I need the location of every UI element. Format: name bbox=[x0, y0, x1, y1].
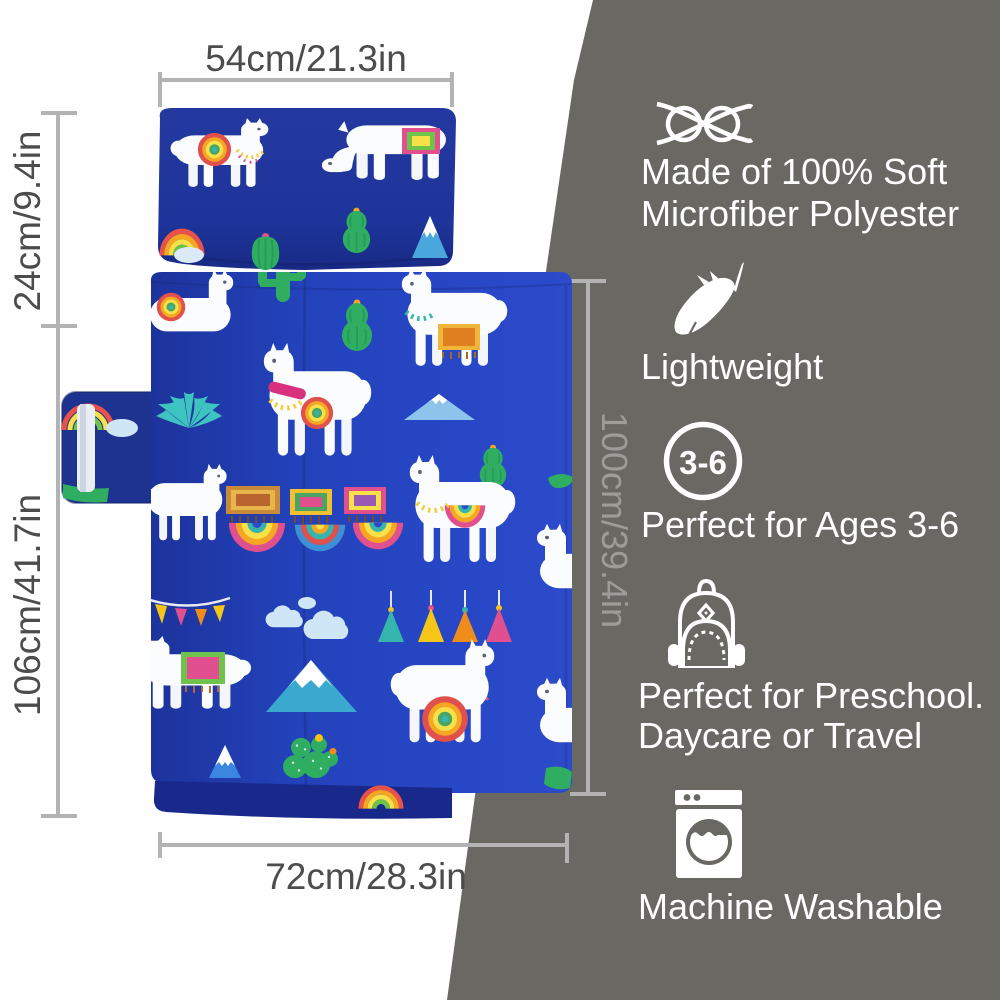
svg-text:Microfiber Polyester: Microfiber Polyester bbox=[641, 193, 959, 234]
svg-text:Made of 100% Soft: Made of 100% Soft bbox=[641, 151, 947, 192]
svg-text:3-6: 3-6 bbox=[679, 444, 727, 481]
svg-text:54cm/21.3in: 54cm/21.3in bbox=[205, 38, 407, 79]
svg-text:24cm/9.4in: 24cm/9.4in bbox=[7, 131, 48, 312]
svg-text:Perfect for Preschool.: Perfect for Preschool. bbox=[638, 675, 984, 716]
svg-text:Lightweight: Lightweight bbox=[641, 346, 823, 387]
svg-text:106cm/41.7in: 106cm/41.7in bbox=[7, 494, 48, 716]
svg-text:72cm/28.3in: 72cm/28.3in bbox=[265, 856, 467, 897]
svg-text:Daycare or Travel: Daycare or Travel bbox=[638, 715, 922, 756]
svg-text:100cm/39.4in: 100cm/39.4in bbox=[594, 412, 635, 628]
svg-text:Machine Washable: Machine Washable bbox=[638, 886, 943, 927]
svg-text:Perfect for Ages 3-6: Perfect for Ages 3-6 bbox=[641, 504, 959, 545]
